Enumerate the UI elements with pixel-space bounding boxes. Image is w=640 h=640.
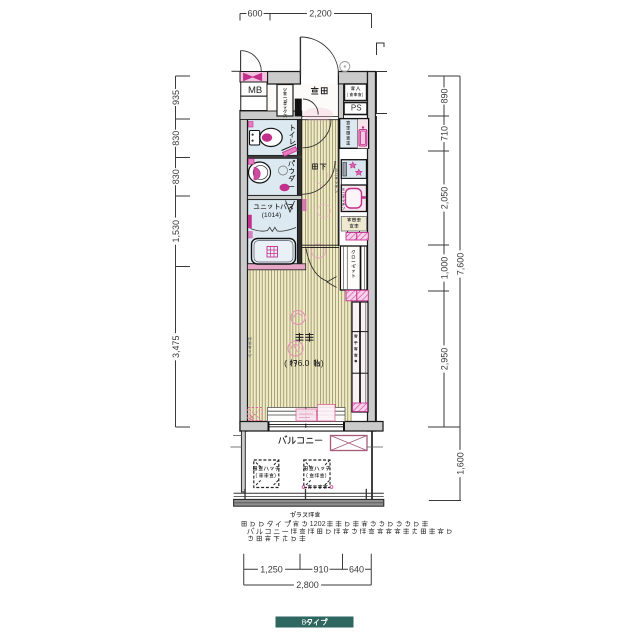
svg-text:890: 890 — [439, 88, 449, 103]
svg-text:1,250: 1,250 — [260, 565, 283, 575]
svg-text:): ) — [274, 473, 276, 479]
svg-text:1,530: 1,530 — [171, 220, 181, 243]
svg-text:(: ( — [255, 473, 257, 479]
svg-text:3,475: 3,475 — [171, 335, 181, 358]
svg-text:910: 910 — [313, 565, 328, 575]
svg-text:PS: PS — [351, 104, 362, 113]
svg-text:830: 830 — [171, 131, 181, 146]
svg-text:(: ( — [306, 473, 308, 479]
svg-text:830: 830 — [171, 169, 181, 184]
svg-text:2,950: 2,950 — [439, 348, 449, 371]
svg-text:1,000: 1,000 — [439, 257, 449, 280]
svg-text:(1014): (1014) — [262, 212, 282, 219]
svg-text:): ) — [325, 473, 327, 479]
svg-text:): ) — [321, 358, 324, 368]
svg-text:6.0: 6.0 — [298, 358, 310, 368]
svg-text:2,800: 2,800 — [296, 580, 319, 590]
svg-text:(: ( — [284, 358, 287, 368]
svg-text:2,050: 2,050 — [439, 187, 449, 210]
svg-text:2,200: 2,200 — [309, 9, 332, 19]
svg-text:710: 710 — [439, 126, 449, 141]
svg-text:935: 935 — [171, 90, 181, 105]
svg-text:MB: MB — [248, 85, 262, 96]
svg-text:B: B — [302, 617, 307, 626]
svg-text:600: 600 — [247, 9, 262, 19]
svg-text:1202: 1202 — [310, 519, 326, 528]
svg-text:7,600: 7,600 — [455, 253, 465, 276]
svg-text:640: 640 — [349, 565, 364, 575]
svg-text:1,600: 1,600 — [455, 452, 465, 475]
